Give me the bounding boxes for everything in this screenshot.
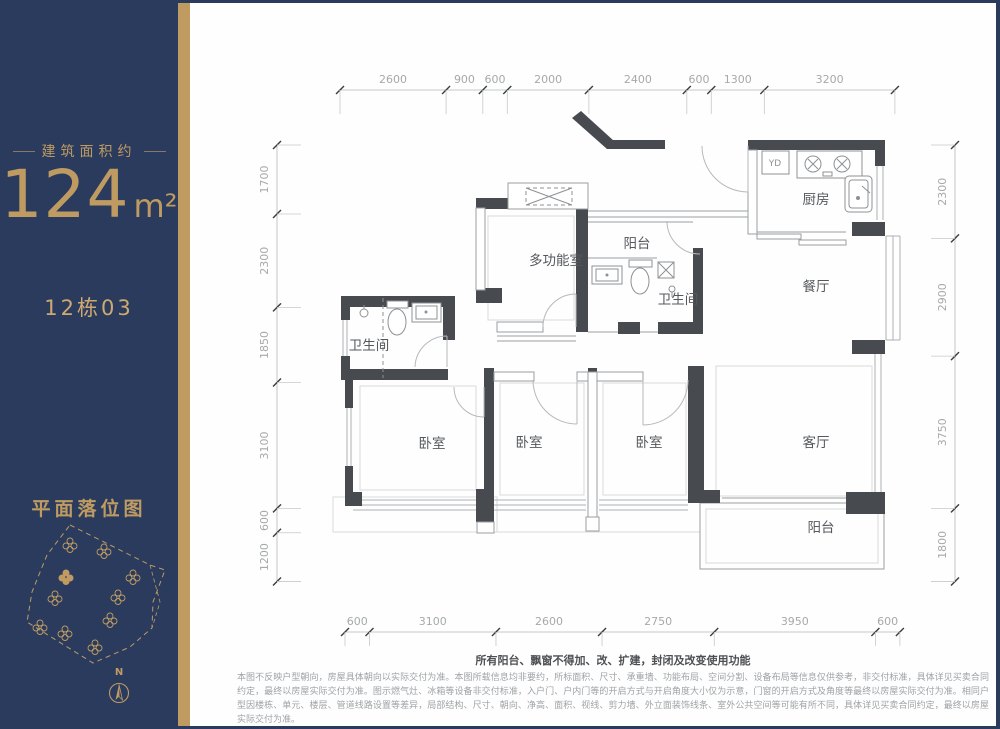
- room-label-bedroom1: 卧室: [419, 435, 446, 452]
- dim-label: 3100: [419, 615, 447, 628]
- dim-label: 1850: [258, 331, 271, 359]
- dim-label: 600: [877, 615, 898, 628]
- unit-number: 12栋03: [0, 292, 178, 322]
- highlighted-building: [59, 570, 73, 585]
- stove-icon: [797, 151, 862, 178]
- dimension-strip-bottom: 6003100260027503950600: [341, 615, 904, 646]
- dim-label: 600: [485, 73, 506, 86]
- basin-icon: [592, 266, 622, 284]
- dim-label: 3200: [816, 73, 844, 86]
- yd-box: YD: [762, 151, 789, 174]
- sidebar: 建筑面积约 124m² 12栋03 平面落位图: [0, 0, 178, 729]
- siteplan-title: 平面落位图: [0, 494, 178, 521]
- elevator-shaft: [508, 183, 588, 209]
- dim-label: 1200: [258, 543, 271, 571]
- washer-icon: [658, 262, 674, 278]
- dimension-strip-left: 17002300185031006001200: [258, 141, 301, 585]
- dim-label: 2400: [624, 73, 652, 86]
- floorplan-page: YD 多功能室 阳台 厨房 餐厅 卫生间 卫生间 卧: [0, 0, 1000, 729]
- dimension-strip-right: 2300290037501800: [931, 141, 959, 585]
- dim-label: 2600: [379, 73, 407, 86]
- gold-accent-strip: [178, 0, 190, 729]
- appliance-label: YD: [768, 159, 781, 169]
- toilet-icon: [387, 301, 408, 335]
- dim-label: 2900: [936, 283, 949, 311]
- site-boundary: [27, 525, 165, 663]
- room-label-balcony-top: 阳台: [624, 236, 651, 252]
- siteplan-sketch: [0, 520, 178, 670]
- dim-label: 1800: [936, 531, 949, 559]
- area-unit: m²: [133, 187, 177, 225]
- dim-label: 600: [347, 615, 368, 628]
- sink-icon: [412, 303, 441, 322]
- room-label-bath-small: 卫生间: [658, 292, 699, 308]
- dimension-strip-top: 26009006002000240060013003200: [336, 73, 899, 114]
- dim-label: 2750: [644, 615, 672, 628]
- compass-icon: [104, 678, 134, 706]
- frame-top: [0, 0, 1000, 3]
- dim-label: 2300: [936, 178, 949, 206]
- dim-label: 2300: [258, 247, 271, 275]
- area-value-block: 124m²: [0, 156, 178, 233]
- building-footprints: [33, 538, 140, 655]
- room-label-multi: 多功能室: [529, 252, 583, 269]
- toilet2-icon: [629, 260, 652, 294]
- dim-label: 3750: [936, 418, 949, 446]
- disclaimer: 所有阳台、飘窗不得加、改、扩建，封闭及改变使用功能 本图不反映户型朝向，房屋具体…: [237, 652, 989, 728]
- disclaimer-body: 本图不反映户型朝向，房屋具体朝向以实际交付为准。本图所载信息均非要约，所标面积、…: [237, 672, 989, 728]
- kitchen-sink-icon: [845, 176, 872, 212]
- dash-right: [144, 151, 166, 152]
- compass-n-label: N: [104, 668, 134, 678]
- dim-label: 600: [258, 510, 271, 531]
- dash-left: [13, 151, 35, 152]
- room-label-kitchen: 厨房: [803, 192, 830, 208]
- room-label-living: 客厅: [803, 434, 830, 451]
- dim-label: 600: [689, 73, 710, 86]
- fixtures: YD: [360, 151, 872, 378]
- dim-label: 900: [454, 73, 475, 86]
- site-parcel-line: [150, 565, 160, 628]
- disclaimer-headline: 所有阳台、飘窗不得加、改、扩建，封闭及改变使用功能: [237, 652, 989, 668]
- dim-label: 2000: [534, 73, 562, 86]
- compass: N: [104, 668, 134, 710]
- dim-label: 1300: [724, 73, 752, 86]
- room-label-balcony-bottom: 阳台: [808, 520, 835, 536]
- room-label-bedroom3: 卧室: [636, 434, 663, 451]
- room-label-bedroom2: 卧室: [516, 434, 543, 451]
- dim-label: 1700: [258, 166, 271, 194]
- room-label-dining: 餐厅: [803, 279, 830, 295]
- frame-right: [996, 0, 1000, 729]
- dim-label: 3100: [258, 431, 271, 459]
- dim-label: 2600: [535, 615, 563, 628]
- area-value: 124: [1, 156, 130, 233]
- room-label-bath-left: 卫生间: [349, 338, 390, 354]
- dim-label: 3950: [781, 615, 809, 628]
